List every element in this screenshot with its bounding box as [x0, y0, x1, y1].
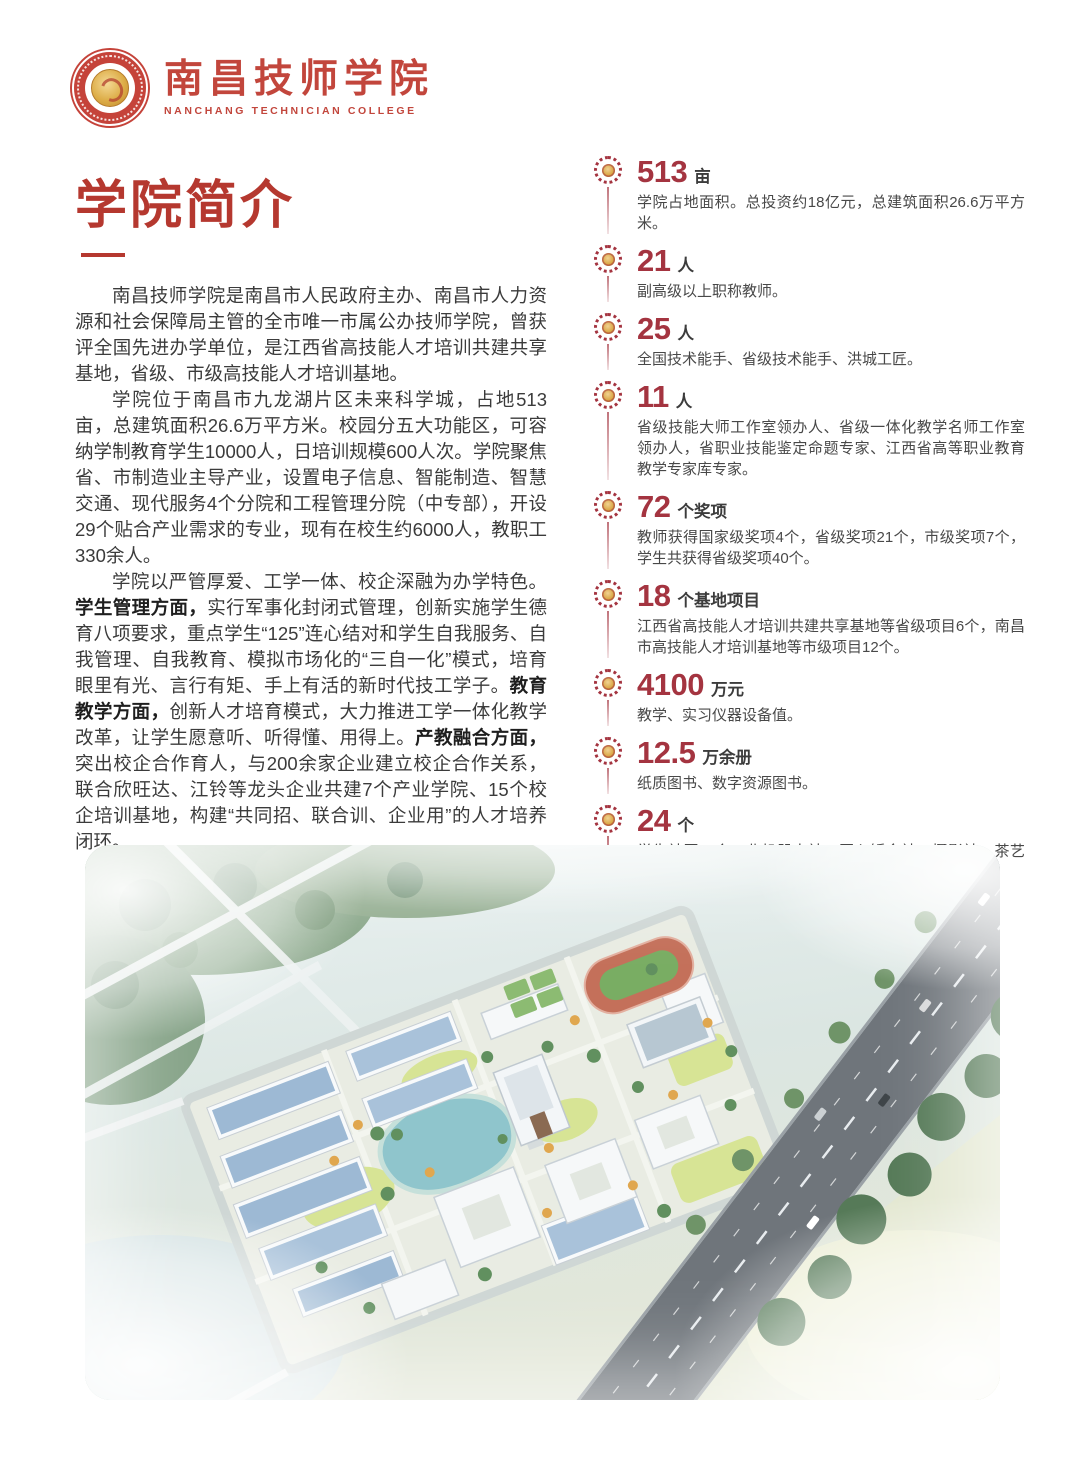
- rosette-badge-icon: [594, 245, 622, 273]
- stat-icon-column: [593, 737, 623, 794]
- stat-body: 18 个基地项目 江西省高技能人才培训共建共享基地等省级项目6个，南昌市高技能人…: [637, 580, 1025, 658]
- rosette-badge-icon: [594, 669, 622, 697]
- stat-unit: 万余册: [702, 744, 752, 768]
- stat-head: 513 亩: [637, 156, 1025, 187]
- stat-unit: 人: [676, 388, 693, 412]
- rosette-gold-core: [602, 588, 615, 601]
- stat-desc: 学院占地面积。总投资约18亿元，总建筑面积26.6万平方米。: [637, 192, 1025, 234]
- stat-value: 21: [637, 245, 670, 276]
- stat-desc: 省级技能大师工作室领办人、省级一体化教学名师工作室领办人，省职业技能鉴定命题专家…: [637, 417, 1025, 480]
- stat-body: 11 人 省级技能大师工作室领办人、省级一体化教学名师工作室领办人，省职业技能鉴…: [637, 381, 1025, 480]
- stat-value: 72: [637, 491, 670, 522]
- rosette-badge-icon: [594, 156, 622, 184]
- badge-stem-line: [607, 522, 609, 569]
- brochure-page: 南昌技师学院 NANCHANG TECHNICIAN COLLEGE 学院简介 …: [0, 0, 1080, 1480]
- rosette-badge-icon: [594, 381, 622, 409]
- rosette-gold-core: [602, 321, 615, 334]
- stat-value: 11: [637, 381, 669, 412]
- stats-list: 513 亩 学院占地面积。总投资约18亿元，总建筑面积26.6万平方米。 21 …: [593, 156, 1025, 894]
- stat-value: 24: [637, 805, 670, 836]
- stat-head: 21 人: [637, 245, 1025, 276]
- college-name-cn: 南昌技师学院: [164, 60, 434, 99]
- stat-value: 513: [637, 156, 687, 187]
- intro-paragraph: 南昌技师学院是南昌市人民政府主办、南昌市人力资源和社会保障局主管的全市唯一市属公…: [75, 283, 547, 387]
- stat-head: 72 个奖项: [637, 491, 1025, 522]
- rosette-gold-core: [602, 164, 615, 177]
- stat-body: 4100 万元 教学、实习仪器设备值。: [637, 669, 1025, 726]
- stat-unit: 人: [677, 320, 694, 344]
- rosette-gold-core: [602, 745, 615, 758]
- stat-item: 21 人 副高级以上职称教师。: [593, 245, 1025, 302]
- badge-stem-line: [607, 768, 609, 794]
- rosette-badge-icon: [594, 491, 622, 519]
- badge-stem-line: [607, 344, 609, 370]
- stat-item: 18 个基地项目 江西省高技能人才培训共建共享基地等省级项目6个，南昌市高技能人…: [593, 580, 1025, 658]
- stat-value: 25: [637, 313, 670, 344]
- stat-icon-column: [593, 381, 623, 480]
- logo-text: 南昌技师学院 NANCHANG TECHNICIAN COLLEGE: [164, 60, 434, 117]
- stat-head: 11 人: [637, 381, 1025, 412]
- badge-stem-line: [607, 412, 609, 480]
- badge-stem-line: [607, 276, 609, 302]
- stat-unit: 个奖项: [677, 498, 727, 522]
- rosette-gold-core: [602, 677, 615, 690]
- rosette-badge-icon: [594, 313, 622, 341]
- stat-item: 4100 万元 教学、实习仪器设备值。: [593, 669, 1025, 726]
- stat-head: 4100 万元: [637, 669, 1025, 700]
- stat-desc: 纸质图书、数字资源图书。: [637, 773, 1025, 794]
- rosette-gold-core: [602, 389, 615, 402]
- stat-unit: 人: [677, 252, 694, 276]
- stat-icon-column: [593, 491, 623, 569]
- intro-paragraphs: 南昌技师学院是南昌市人民政府主办、南昌市人力资源和社会保障局主管的全市唯一市属公…: [75, 283, 547, 855]
- stat-unit: 个: [677, 812, 694, 836]
- stat-value: 4100: [637, 669, 704, 700]
- badge-stem-line: [607, 700, 609, 726]
- campus-aerial-illustration: [85, 845, 1000, 1400]
- stat-unit: 个基地项目: [677, 587, 760, 611]
- stat-body: 25 人 全国技术能手、省级技术能手、洪城工匠。: [637, 313, 1025, 370]
- stat-value: 12.5: [637, 737, 695, 768]
- stat-icon-column: [593, 245, 623, 302]
- stat-desc: 教学、实习仪器设备值。: [637, 705, 1025, 726]
- rosette-badge-icon: [594, 580, 622, 608]
- stat-icon-column: [593, 156, 623, 234]
- stat-item: 72 个奖项 教师获得国家级奖项4个，省级奖项21个，市级奖项7个，学生共获得省…: [593, 491, 1025, 569]
- stat-head: 24 个: [637, 805, 1025, 836]
- stat-icon-column: [593, 313, 623, 370]
- rosette-gold-core: [602, 813, 615, 826]
- intro-paragraph: 学院位于南昌市九龙湖片区未来科学城，占地513亩，总建筑面积26.6万平方米。校…: [75, 387, 547, 569]
- college-seal-icon: [72, 50, 148, 126]
- stat-icon-column: [593, 580, 623, 658]
- stat-body: 12.5 万余册 纸质图书、数字资源图书。: [637, 737, 1025, 794]
- intro-paragraph: 学院以严管厚爱、工学一体、校企深融为办学特色。学生管理方面，实行军事化封闭式管理…: [75, 569, 547, 855]
- badge-stem-line: [607, 187, 609, 234]
- rosette-gold-core: [602, 499, 615, 512]
- college-name-en: NANCHANG TECHNICIAN COLLEGE: [164, 105, 434, 117]
- stat-head: 12.5 万余册: [637, 737, 1025, 768]
- page-title: 学院简介: [75, 178, 547, 235]
- title-underline: [81, 253, 125, 257]
- campus-aerial-photo: [85, 845, 1000, 1400]
- stat-item: 11 人 省级技能大师工作室领办人、省级一体化教学名师工作室领办人，省职业技能鉴…: [593, 381, 1025, 480]
- stat-body: 513 亩 学院占地面积。总投资约18亿元，总建筑面积26.6万平方米。: [637, 156, 1025, 234]
- college-logo: 南昌技师学院 NANCHANG TECHNICIAN COLLEGE: [72, 50, 434, 126]
- stat-unit: 万元: [711, 676, 744, 700]
- seal-gold-emblem: [91, 69, 129, 107]
- stat-body: 21 人 副高级以上职称教师。: [637, 245, 1025, 302]
- stat-desc: 江西省高技能人才培训共建共享基地等省级项目6个，南昌市高技能人才培训基地等市级项…: [637, 616, 1025, 658]
- stat-desc: 教师获得国家级奖项4个，省级奖项21个，市级奖项7个，学生共获得省级奖项40个。: [637, 527, 1025, 569]
- rosette-gold-core: [602, 253, 615, 266]
- stat-unit: 亩: [694, 163, 711, 187]
- stat-desc: 全国技术能手、省级技术能手、洪城工匠。: [637, 349, 1025, 370]
- stat-desc: 副高级以上职称教师。: [637, 281, 1025, 302]
- stat-item: 12.5 万余册 纸质图书、数字资源图书。: [593, 737, 1025, 794]
- stat-item: 25 人 全国技术能手、省级技术能手、洪城工匠。: [593, 313, 1025, 370]
- intro-section: 学院简介 南昌技师学院是南昌市人民政府主办、南昌市人力资源和社会保障局主管的全市…: [75, 178, 547, 855]
- rosette-badge-icon: [594, 805, 622, 833]
- stat-value: 18: [637, 580, 670, 611]
- badge-stem-line: [607, 611, 609, 658]
- stat-head: 25 人: [637, 313, 1025, 344]
- stat-body: 72 个奖项 教师获得国家级奖项4个，省级奖项21个，市级奖项7个，学生共获得省…: [637, 491, 1025, 569]
- stat-head: 18 个基地项目: [637, 580, 1025, 611]
- stat-icon-column: [593, 669, 623, 726]
- rosette-badge-icon: [594, 737, 622, 765]
- stat-item: 513 亩 学院占地面积。总投资约18亿元，总建筑面积26.6万平方米。: [593, 156, 1025, 234]
